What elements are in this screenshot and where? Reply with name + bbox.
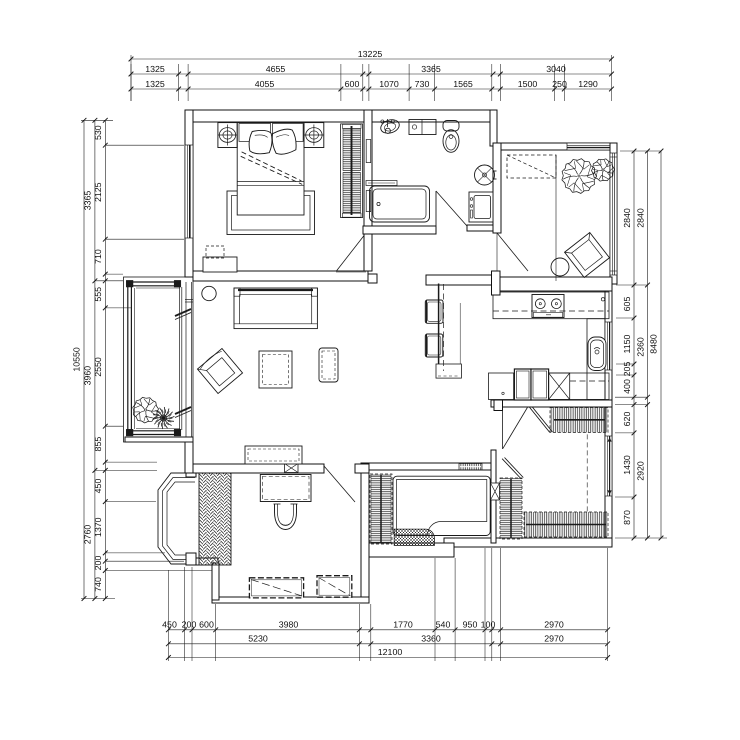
svg-text:710: 710 [93, 249, 103, 264]
svg-text:950: 950 [463, 619, 478, 629]
svg-text:3360: 3360 [421, 633, 441, 643]
svg-text:1070: 1070 [379, 79, 399, 89]
svg-text:730: 730 [415, 79, 430, 89]
svg-text:2970: 2970 [544, 633, 564, 643]
svg-text:1150: 1150 [622, 334, 632, 353]
svg-text:855: 855 [93, 437, 103, 452]
svg-text:1290: 1290 [578, 79, 598, 89]
svg-text:620: 620 [622, 412, 632, 427]
svg-text:530: 530 [93, 125, 103, 140]
svg-text:200: 200 [182, 619, 197, 629]
svg-text:12100: 12100 [378, 647, 403, 657]
svg-text:600: 600 [199, 619, 214, 629]
svg-text:3040: 3040 [546, 64, 566, 74]
svg-text:4655: 4655 [266, 64, 286, 74]
svg-text:1370: 1370 [93, 517, 103, 537]
svg-text:605: 605 [622, 297, 632, 312]
svg-text:1500: 1500 [518, 79, 538, 89]
svg-text:870: 870 [622, 510, 632, 525]
svg-text:3960: 3960 [82, 366, 92, 386]
svg-text:450: 450 [93, 479, 103, 494]
svg-text:2840: 2840 [622, 208, 632, 228]
svg-text:5230: 5230 [248, 633, 268, 643]
svg-text:205: 205 [622, 362, 632, 377]
svg-text:10550: 10550 [72, 347, 82, 372]
svg-text:600: 600 [345, 79, 360, 89]
svg-text:4055: 4055 [255, 79, 275, 89]
svg-text:740: 740 [93, 577, 103, 592]
svg-text:1770: 1770 [393, 619, 413, 629]
svg-text:3365: 3365 [421, 64, 441, 74]
svg-text:3365: 3365 [82, 191, 92, 211]
svg-text:2550: 2550 [93, 357, 103, 377]
svg-text:2360: 2360 [636, 337, 646, 357]
svg-text:555: 555 [93, 287, 103, 302]
svg-text:8480: 8480 [649, 334, 659, 354]
svg-text:2920: 2920 [636, 461, 646, 481]
svg-text:1325: 1325 [145, 64, 165, 74]
svg-text:400: 400 [622, 379, 632, 394]
svg-text:250: 250 [552, 79, 567, 89]
svg-text:1430: 1430 [622, 455, 632, 475]
svg-text:2125: 2125 [93, 182, 103, 202]
svg-text:2760: 2760 [82, 525, 92, 545]
svg-text:1325: 1325 [145, 79, 165, 89]
svg-text:3980: 3980 [279, 619, 299, 629]
svg-text:450: 450 [162, 619, 177, 629]
svg-text:2970: 2970 [544, 619, 564, 629]
svg-text:13225: 13225 [358, 49, 383, 59]
svg-text:1565: 1565 [453, 79, 473, 89]
svg-text:200: 200 [93, 556, 103, 571]
svg-text:100: 100 [481, 619, 496, 629]
svg-text:2840: 2840 [636, 208, 646, 228]
svg-text:540: 540 [436, 619, 451, 629]
